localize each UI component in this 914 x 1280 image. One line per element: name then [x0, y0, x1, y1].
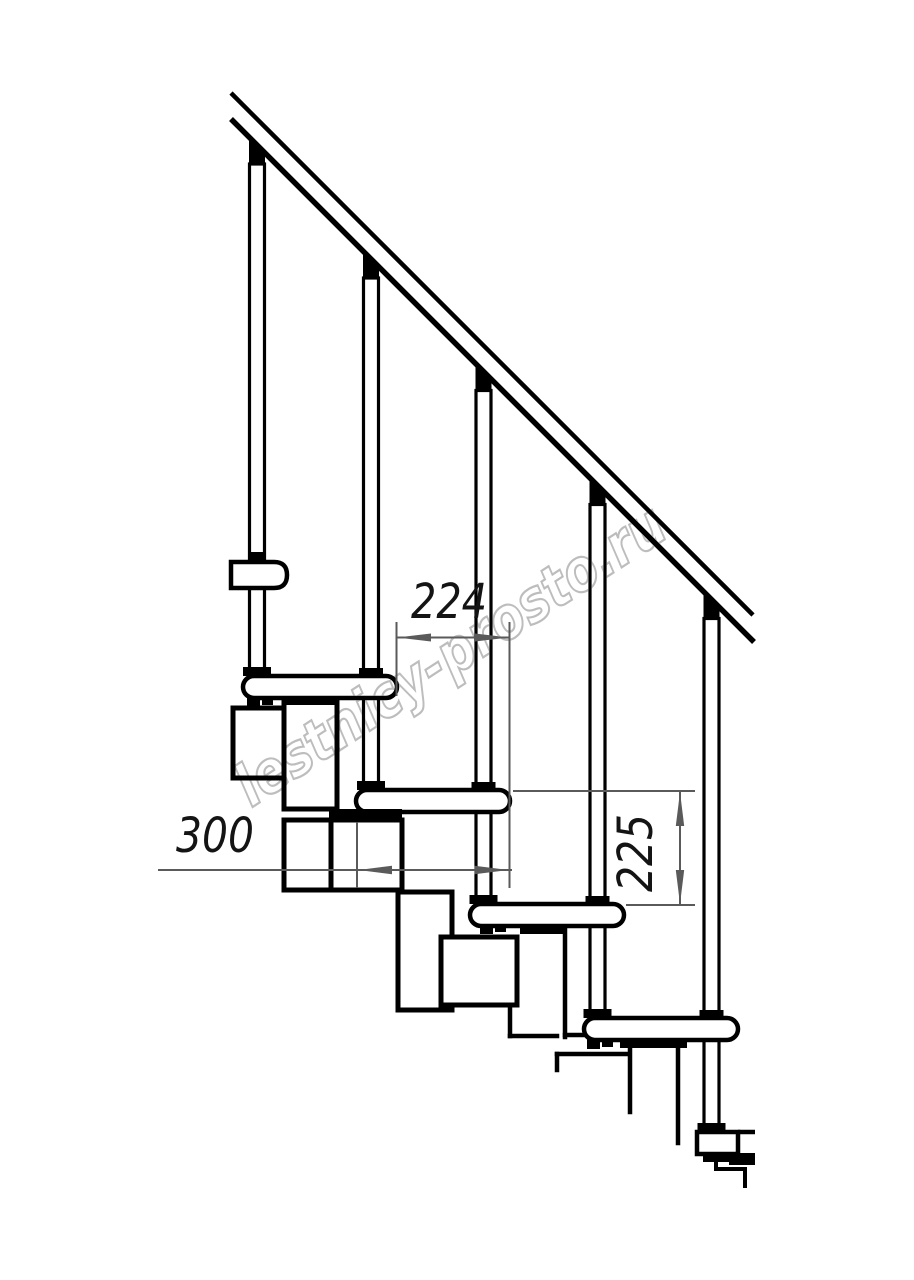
- mount-bracket: [495, 924, 506, 932]
- module-band: [620, 1039, 687, 1048]
- mount-bracket: [587, 1039, 600, 1049]
- dimension-rise-label: 225: [608, 814, 664, 892]
- tread-1-partial: [231, 562, 287, 588]
- landing-clamp: [698, 1123, 726, 1132]
- watermark-text: lestnicy-prosto.ru: [222, 490, 678, 819]
- module-box: [441, 937, 517, 1005]
- baluster-5: [704, 619, 719, 1133]
- landing-clamp: [470, 895, 498, 904]
- tread-4: [470, 904, 624, 926]
- mount-bracket: [480, 924, 493, 934]
- landing-clamp: [243, 667, 271, 676]
- landing-clamp: [357, 781, 385, 790]
- bottom-bracket-outline: [716, 1162, 745, 1188]
- staircase-side-view-drawing: 224 300 225 lestnicy-prosto.ru: [0, 0, 914, 1280]
- module-band: [329, 809, 402, 821]
- mount-bracket: [262, 697, 273, 705]
- nose-collar: [472, 782, 496, 790]
- mount-bracket: [602, 1039, 613, 1047]
- tread-6-partial: [697, 1132, 738, 1154]
- mount-bracket: [247, 697, 260, 707]
- module-band: [729, 1157, 755, 1165]
- watermark: lestnicy-prosto.ru: [222, 490, 678, 819]
- tread-5: [584, 1018, 738, 1040]
- landing-clamp: [584, 1009, 612, 1018]
- nose-collar: [700, 1010, 724, 1018]
- module-band: [520, 925, 565, 934]
- tread-3: [356, 790, 510, 812]
- nose-collar: [586, 896, 610, 904]
- technical-drawing-canvas: 224 300 225 lestnicy-prosto.ru: [0, 0, 914, 1280]
- dimension-tread-depth-label: 300: [176, 808, 254, 864]
- tread-clamp: [248, 552, 266, 562]
- arrowhead-up: [676, 792, 684, 826]
- arrowhead-down: [676, 870, 684, 904]
- module-box: [284, 820, 402, 890]
- baluster-1: [250, 164, 265, 676]
